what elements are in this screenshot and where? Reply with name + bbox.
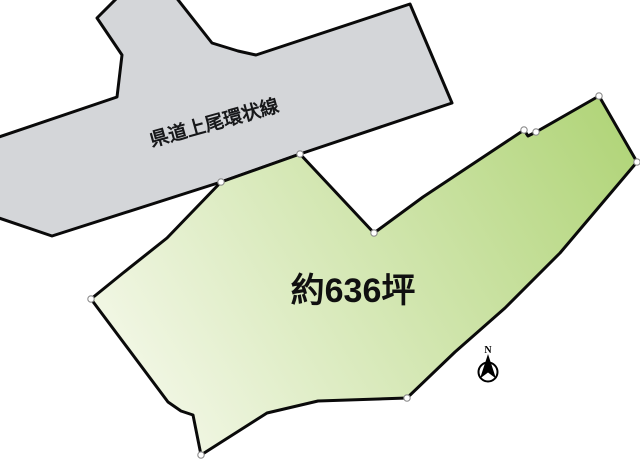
vertex-marker (88, 296, 94, 302)
vertex-marker (218, 179, 224, 185)
vertex-marker (521, 127, 527, 133)
vertex-marker (404, 395, 410, 401)
compass: N (479, 345, 498, 382)
vertex-marker (371, 230, 377, 236)
vertex-marker (596, 93, 602, 99)
plot-map: 県道上尾環状線 約636坪 N (0, 0, 640, 461)
vertex-marker (297, 151, 303, 157)
vertex-marker (198, 452, 204, 458)
vertex-marker (634, 159, 640, 165)
parcel-area-label: 約636坪 (291, 272, 416, 310)
vertex-marker (533, 129, 539, 135)
site-plan-svg: 県道上尾環状線 約636坪 N (0, 0, 640, 461)
compass-north-label: N (484, 345, 492, 356)
